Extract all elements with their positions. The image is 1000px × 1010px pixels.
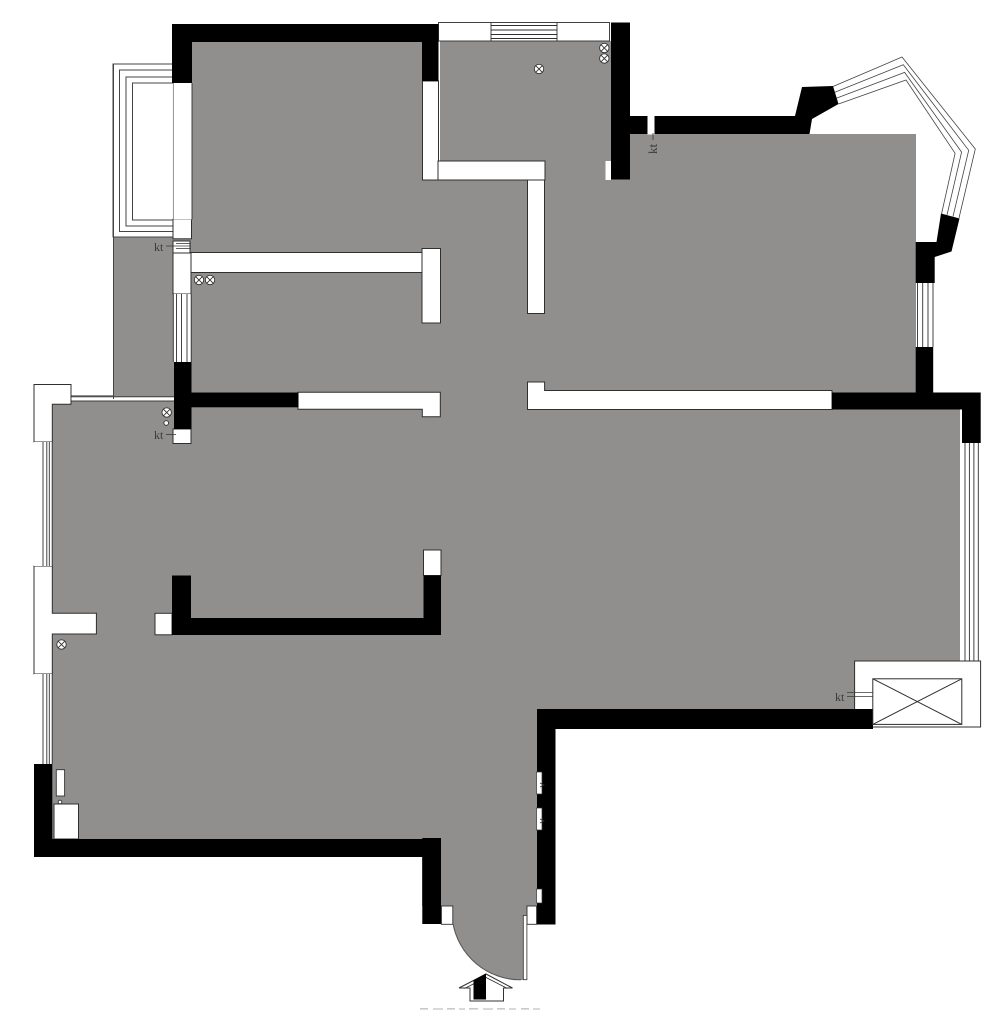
- svg-text:kt: kt: [154, 240, 164, 254]
- svg-text:kt: kt: [154, 428, 164, 442]
- svg-text:kt: kt: [835, 690, 845, 704]
- svg-text:kt: kt: [645, 144, 660, 155]
